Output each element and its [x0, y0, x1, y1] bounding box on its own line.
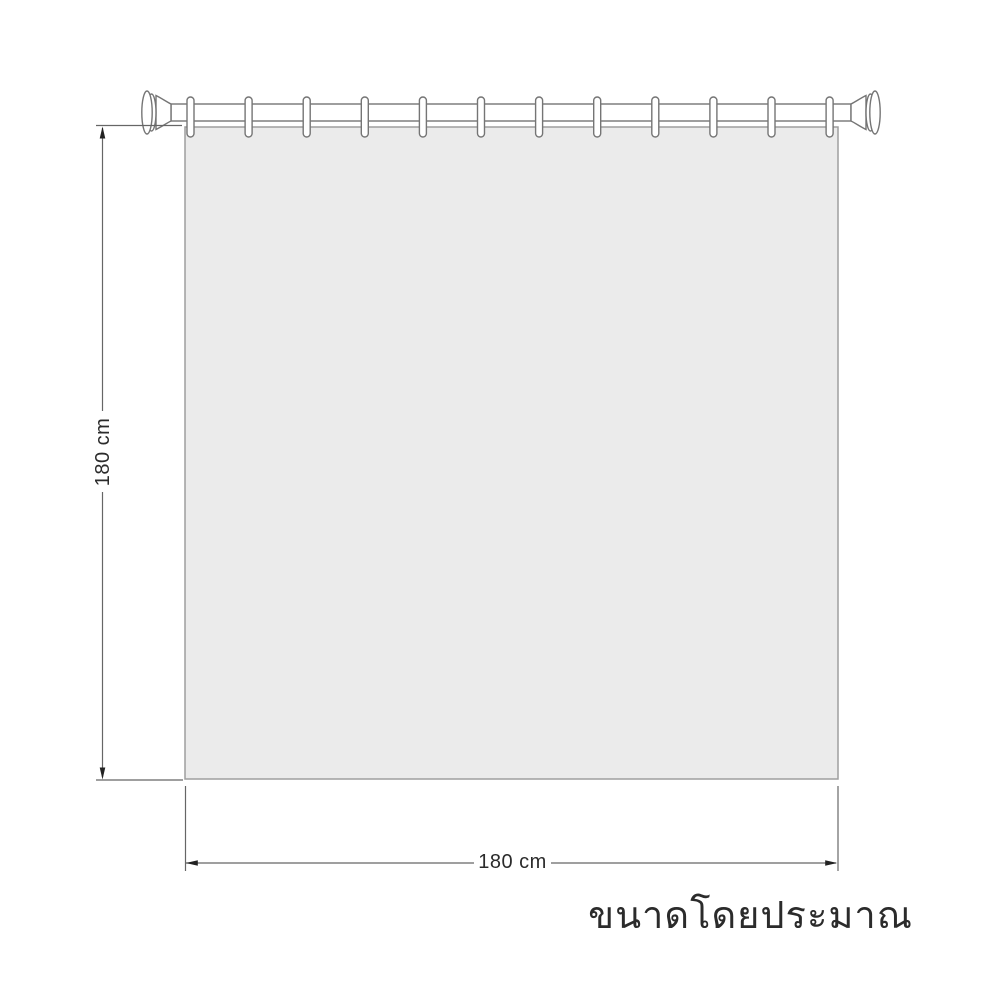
- caption-text: ขนาดโดยประมาณ: [588, 884, 913, 945]
- curtain-hook: [768, 97, 775, 137]
- curtain-hook: [478, 97, 485, 137]
- width-dimension-label: 180 cm: [452, 851, 573, 873]
- curtain-hook: [187, 97, 194, 137]
- diagram-canvas: [0, 0, 1000, 1000]
- rod-end-cap-left: [142, 91, 171, 134]
- curtain-hook: [710, 97, 717, 137]
- curtain-hook: [536, 97, 543, 137]
- curtain-hook: [419, 97, 426, 137]
- curtain-hook: [594, 97, 601, 137]
- arrow-down-icon: [100, 768, 106, 780]
- rod-tube: [171, 104, 851, 121]
- arrow-left-icon: [186, 860, 198, 866]
- curtain-hook: [652, 97, 659, 137]
- curtain-hook: [361, 97, 368, 137]
- arrow-up-icon: [100, 127, 106, 139]
- curtain-hook: [303, 97, 310, 137]
- curtain-hook: [245, 97, 252, 137]
- product-dimension-diagram: 180 cm 180 cm ขนาดโดยประมาณ: [0, 0, 1000, 1000]
- rod-end-cap-right: [851, 91, 880, 134]
- curtain-hook: [826, 97, 833, 137]
- height-dimension-label: 180 cm: [92, 392, 114, 512]
- arrow-right-icon: [825, 860, 837, 866]
- shower-curtain-panel: [185, 127, 838, 779]
